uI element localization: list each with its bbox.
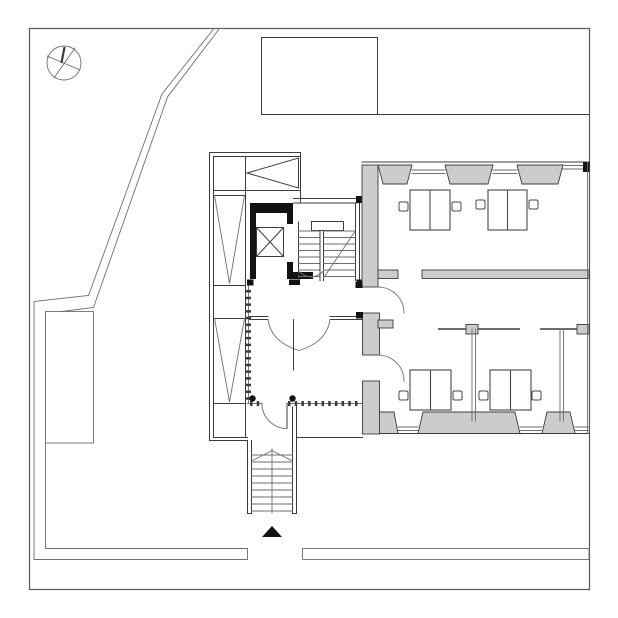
west-wall-inner [214, 157, 301, 438]
garden-wall-left [34, 549, 248, 560]
chair [452, 202, 461, 211]
south-wall-pier [542, 412, 575, 434]
stair-treads-left [299, 231, 321, 277]
core-east-wall [356, 199, 360, 281]
chair [532, 391, 541, 400]
chair [476, 200, 485, 209]
partition-stub [378, 320, 393, 328]
room-divider-wall [560, 329, 564, 421]
chair [399, 391, 408, 400]
partition-stub [378, 270, 398, 279]
ramp-direction-v-upper [215, 196, 245, 284]
floor-plan-drawing [0, 0, 618, 618]
stair-wall-left [248, 441, 252, 514]
elevator-x-icon [257, 228, 284, 257]
column-dot [289, 395, 295, 401]
chair [479, 391, 488, 400]
desk-group [399, 190, 461, 230]
entrance-arrow-icon [262, 526, 282, 537]
planter-bed [46, 312, 94, 444]
spine-wall-middle [363, 313, 380, 355]
ramp-arrow-icon [247, 158, 299, 188]
garden-wall-right [303, 549, 590, 560]
compass-needle [62, 47, 65, 63]
door-swing-corridor [378, 287, 404, 313]
elevator-shaft [250, 203, 313, 279]
door-swing-office [378, 355, 404, 381]
desk-group [476, 190, 538, 230]
spine-wall-lower [363, 381, 380, 434]
north-east-glazing [563, 166, 583, 170]
roof-outline [262, 38, 378, 115]
desk-group [479, 370, 541, 410]
desk-group [399, 370, 462, 410]
chair [453, 391, 462, 400]
stair-wall-right [293, 404, 297, 514]
south-wall-pier [377, 412, 398, 434]
north-wall-pier [445, 165, 493, 184]
site [30, 29, 590, 590]
site-path-outer [34, 29, 214, 560]
stair-cut-line [324, 232, 356, 279]
core-north-wall [294, 199, 357, 204]
chair [399, 202, 408, 211]
north-wall-pier [378, 165, 412, 184]
site-path-inner [46, 29, 220, 549]
chair [529, 200, 538, 209]
double-door-swing [268, 320, 330, 351]
north-wall-pier [517, 165, 563, 184]
compass-icon [47, 46, 81, 80]
room-divider-wall [472, 329, 476, 421]
wing-south-wall [210, 438, 248, 441]
stair-landing [312, 222, 344, 231]
ramp-direction-v-lower [215, 319, 245, 403]
floor-plan-sheet [0, 0, 618, 618]
south-wall-pier [418, 412, 520, 434]
corridor-partition-wall [422, 270, 589, 279]
entrance-hall [248, 286, 363, 429]
hall-north-wall [249, 317, 362, 320]
site-boundary [30, 29, 590, 590]
spine-wall-upper [362, 165, 378, 287]
entrance-door-swing [262, 404, 287, 429]
column-dot [249, 395, 255, 401]
